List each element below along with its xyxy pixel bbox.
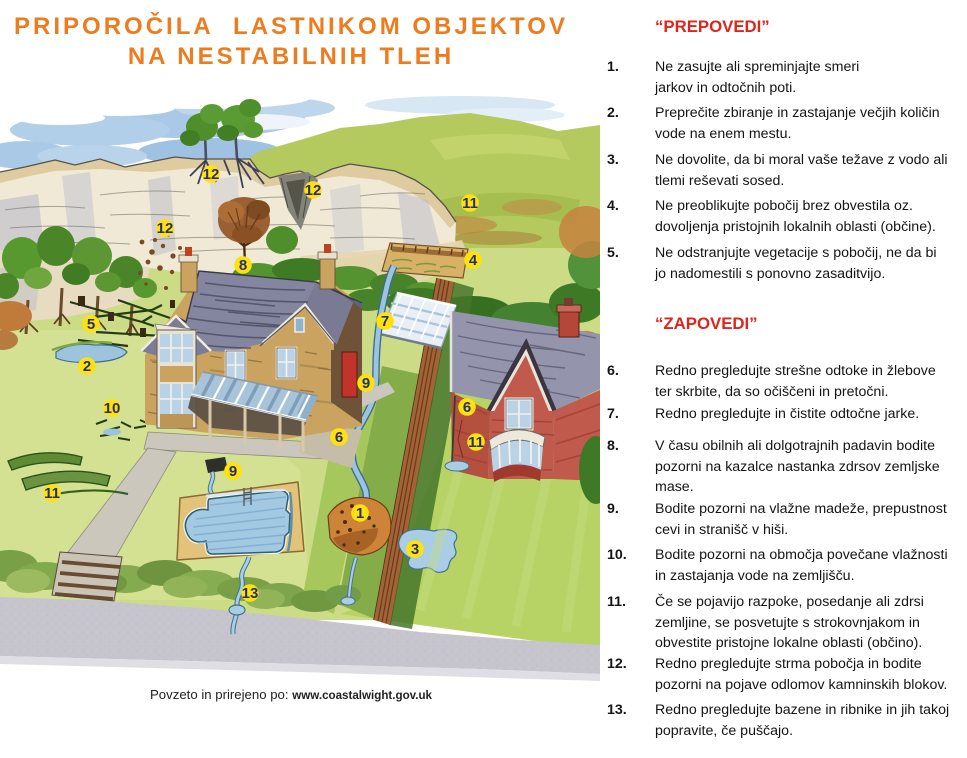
svg-text:12: 12 (203, 166, 220, 183)
svg-text:6: 6 (463, 399, 471, 416)
svg-text:8: 8 (239, 257, 247, 274)
svg-text:10: 10 (104, 400, 121, 417)
svg-text:5: 5 (87, 316, 95, 333)
svg-text:3: 3 (411, 541, 419, 558)
svg-text:6: 6 (335, 429, 343, 446)
svg-text:7: 7 (381, 313, 389, 330)
svg-text:11: 11 (468, 434, 484, 451)
svg-text:11: 11 (462, 195, 478, 212)
svg-text:9: 9 (362, 375, 370, 392)
svg-text:12: 12 (305, 182, 322, 199)
svg-text:4: 4 (469, 252, 478, 269)
svg-text:12: 12 (157, 220, 174, 237)
svg-text:11: 11 (44, 485, 60, 502)
svg-text:13: 13 (242, 585, 259, 602)
svg-text:1: 1 (356, 505, 364, 522)
svg-text:9: 9 (229, 463, 237, 480)
svg-text:2: 2 (83, 358, 91, 375)
